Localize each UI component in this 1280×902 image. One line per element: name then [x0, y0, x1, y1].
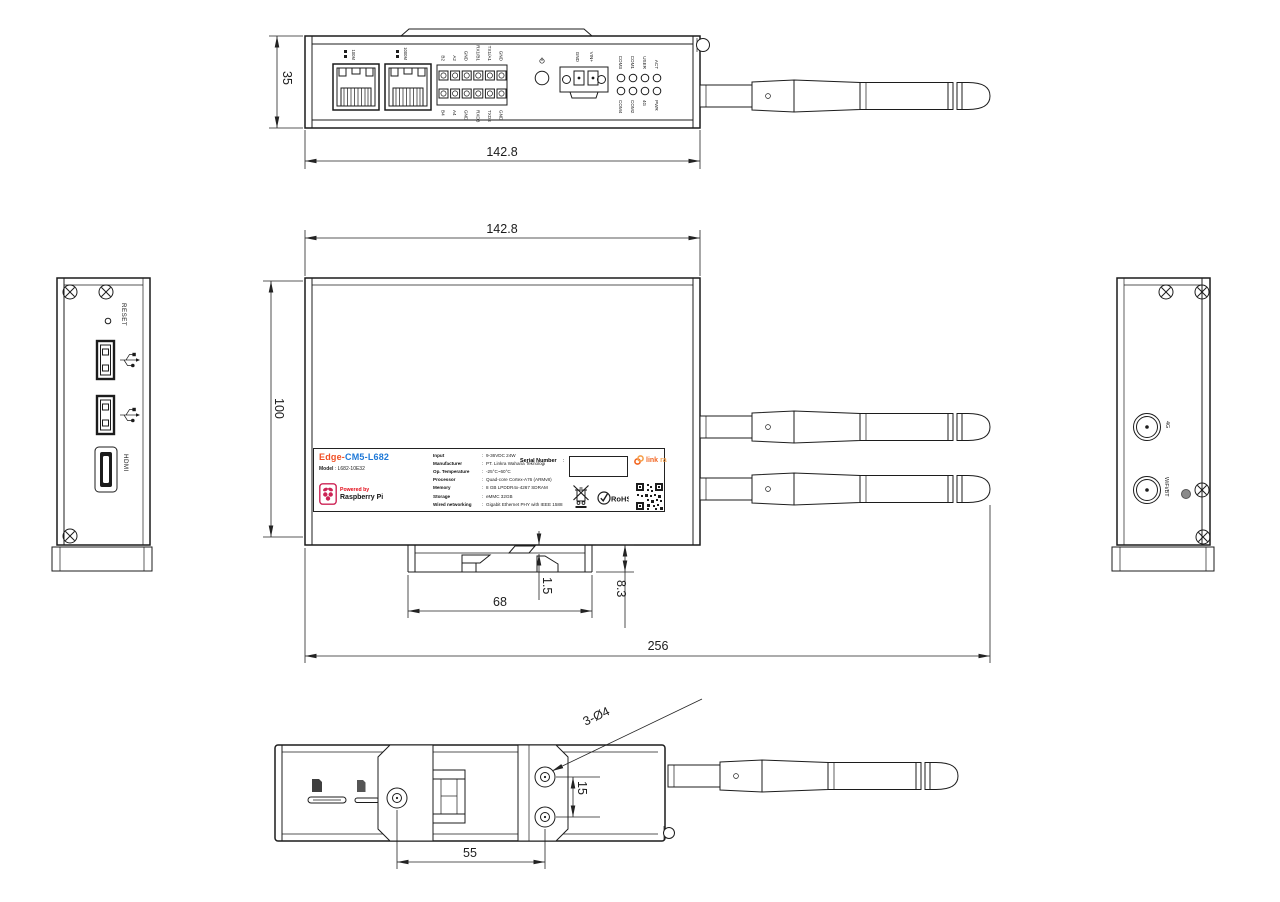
top-corner-screw	[697, 38, 710, 52]
bottom-view: 3-Ø4 15 55	[275, 699, 958, 869]
dim-35: 35	[269, 36, 303, 128]
spec-row: Memory:8 GB LPDDR4x-4267 SDRAM	[433, 484, 573, 492]
dim-68: 68	[408, 575, 592, 618]
svg-text:4G: 4G	[642, 100, 647, 107]
reset-button-top	[535, 58, 549, 85]
screw-left-top-1	[63, 285, 77, 299]
ethernet-port-1	[333, 64, 379, 110]
svg-text:100: 100	[272, 398, 286, 419]
raspberry-pi-logo	[319, 483, 337, 505]
raspberry-pi-text: Raspberry Pi	[340, 494, 383, 501]
svg-text:B2: B2	[441, 55, 446, 61]
product-title-main: CM5-L682	[345, 452, 389, 462]
svg-text:COM4: COM4	[618, 100, 623, 114]
mount-hole-bottom-right	[535, 807, 555, 827]
screw-left-top-2	[99, 285, 113, 299]
right-side-view: 4G WiFi/BT	[1112, 278, 1214, 571]
svg-text:COM3: COM3	[618, 56, 623, 70]
ground-point	[1182, 490, 1191, 499]
svg-text:1.5: 1.5	[540, 577, 554, 594]
eth2-speed-label: 1000M	[403, 47, 408, 60]
rohs-text: RoHS	[611, 495, 629, 504]
svg-text:35: 35	[280, 71, 294, 85]
spec-row: Op. Temperature:-25°C~60°C	[433, 468, 573, 476]
reset-pinhole	[105, 318, 111, 324]
din-clip	[433, 770, 465, 823]
svg-text:RX1/B1: RX1/B1	[475, 45, 480, 61]
eth1-led-icon	[344, 50, 347, 53]
antenna-4g-label: 4G	[1164, 421, 1170, 428]
product-label: Edge-CM5-L682 Model : L682-10E32 Powered…	[313, 448, 665, 512]
weee-bin-icon	[573, 483, 589, 509]
ethernet-port-2	[385, 64, 431, 110]
model-row: Model : L682-10E32	[319, 466, 365, 472]
antenna-front-2	[700, 473, 990, 505]
screw-left-bottom	[63, 529, 77, 543]
model-sep: :	[335, 466, 336, 472]
eth2-led-icon	[396, 50, 399, 53]
usb-port-2	[97, 396, 114, 434]
right-foot	[1112, 547, 1214, 571]
terminal-pin-labels-top: B2 A2 GND RX1/B1 TX1/A1 GND	[441, 45, 504, 62]
power-connector	[560, 67, 608, 98]
svg-text:A2: A2	[452, 55, 457, 61]
svg-text:142.8: 142.8	[486, 222, 517, 236]
svg-text:55: 55	[463, 846, 477, 860]
eth1-speed-label: 100M	[351, 50, 356, 61]
svg-text:3-Ø4: 3-Ø4	[581, 704, 612, 728]
svg-text:USER: USER	[642, 56, 647, 69]
spec-row: Processor:Quad-core Cortex-A76 (ARMv8)	[433, 476, 573, 484]
sma-connector-4g	[1134, 414, 1161, 441]
antenna-wifi-label: WiFi/BT	[1163, 477, 1169, 497]
sim2-icon	[357, 780, 366, 792]
led-indicators	[617, 74, 661, 95]
serial-number-label: Serial Number	[520, 458, 557, 464]
svg-text:68: 68	[493, 595, 507, 609]
terminal-block	[437, 65, 507, 105]
svg-text:TXD3: TXD3	[487, 110, 492, 122]
technical-drawing-canvas: 100M 1000M B2 A2 GND RX1/B1 TX1/A1 GND B…	[0, 0, 1280, 902]
usb-port-1	[97, 341, 114, 379]
svg-text:GND: GND	[464, 110, 469, 121]
led-labels-bottom: COM4 COM2 4G PWR	[618, 100, 659, 114]
screw-right-top-1	[1159, 285, 1173, 299]
serial-sep: :	[563, 458, 565, 464]
serial-number-box	[569, 456, 628, 477]
top-view: 100M 1000M B2 A2 GND RX1/B1 TX1/A1 GND B…	[269, 29, 990, 169]
svg-text:15: 15	[575, 781, 589, 795]
spec-row: Storage:eMMC 32GB	[433, 493, 573, 501]
svg-text:B4: B4	[441, 110, 446, 116]
svg-text:GND: GND	[499, 110, 504, 121]
product-title-prefix: Edge-	[319, 452, 345, 462]
svg-text:A4: A4	[452, 110, 457, 116]
led-labels-top: COM3 COM1 USER ACT	[618, 56, 659, 70]
product-title: Edge-CM5-L682	[319, 452, 389, 462]
mount-hole-left	[387, 788, 407, 808]
svg-text:ACT: ACT	[654, 60, 659, 69]
hdmi-label: HDMI	[122, 454, 129, 472]
linkra-text-2: ra	[660, 457, 667, 464]
reset-label: RESET	[120, 303, 127, 326]
usb-icon-2	[120, 408, 140, 423]
powered-by-text: Powered by	[340, 487, 369, 493]
din-bracket	[408, 545, 592, 572]
screw-right-bottom	[1196, 530, 1210, 544]
svg-text:TX1/A1: TX1/A1	[487, 46, 492, 62]
hole-callout: 3-Ø4	[552, 699, 702, 771]
sma-connector-wifi	[1134, 477, 1161, 504]
dim-142-8-top: 142.8	[305, 130, 700, 169]
svg-text:COM2: COM2	[630, 100, 635, 114]
power-pin-gnd: GND	[575, 52, 580, 63]
svg-text:PWR: PWR	[654, 100, 659, 111]
svg-text:256: 256	[648, 639, 669, 653]
antenna-top-view	[700, 80, 990, 112]
linkra-logo: linkra	[634, 455, 667, 465]
usb-icon-1	[120, 353, 140, 368]
antenna-front-1	[700, 411, 990, 443]
model-key: Model	[319, 466, 333, 472]
left-foot	[52, 547, 152, 571]
qr-code	[635, 482, 664, 511]
power-pin-vin: VIN+	[589, 52, 594, 63]
sim-slot-2	[355, 798, 379, 803]
left-side-view: RESET HDMI	[52, 278, 152, 571]
rohs-icon: RoHS	[597, 490, 629, 506]
spec-row: Wired networking:Gigabit Ethernet PHY wi…	[433, 501, 573, 509]
dim-8-3: 8.3	[596, 545, 634, 628]
svg-text:RXD3: RXD3	[475, 110, 480, 123]
svg-text:GND: GND	[499, 51, 504, 62]
antenna-bottom-view	[668, 760, 958, 792]
left-body-outline	[57, 278, 150, 545]
sim1-icon	[312, 779, 322, 792]
svg-text:142.8: 142.8	[486, 145, 517, 159]
svg-text:GND: GND	[464, 51, 469, 62]
model-value: L682-10E32	[338, 466, 365, 472]
terminal-pin-labels-bottom: B4 A4 GND RXD3 TXD3 GND	[441, 110, 504, 123]
dim-142-8-front: 142.8	[305, 222, 700, 276]
bottom-body-outline	[275, 745, 665, 841]
raspberry-pi-badge: Powered by Raspberry Pi	[319, 483, 399, 509]
mount-hole-top-right	[535, 767, 555, 787]
hdmi-port	[95, 447, 117, 492]
dim-100: 100	[263, 281, 303, 537]
linkra-icon	[634, 455, 644, 465]
linkra-text-1: link	[646, 457, 658, 464]
front-view: 142.8 100 68 1.5 8.3 256	[263, 222, 990, 663]
svg-text:COM1: COM1	[630, 56, 635, 70]
right-body-outline	[1117, 278, 1210, 545]
svg-text:8.3: 8.3	[614, 580, 628, 597]
top-clip-bump	[401, 29, 592, 36]
